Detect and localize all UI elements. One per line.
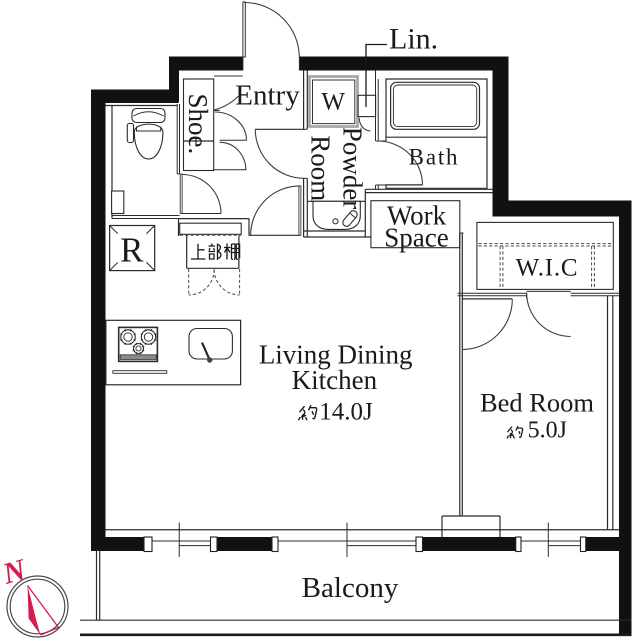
svg-text:W: W <box>321 89 345 116</box>
svg-text:Shoe.: Shoe. <box>183 94 213 155</box>
svg-text:Kitchen: Kitchen <box>292 365 378 395</box>
svg-text:Powder: Powder <box>338 127 368 210</box>
svg-text:Bed Room: Bed Room <box>480 388 594 418</box>
svg-text:Lin.: Lin. <box>389 23 438 56</box>
svg-text:Entry: Entry <box>235 80 300 112</box>
svg-text:R: R <box>120 231 144 270</box>
svg-text:Space: Space <box>384 222 448 252</box>
svg-text:Bath: Bath <box>409 145 460 170</box>
svg-text:5.0J: 5.0J <box>528 418 567 444</box>
svg-text:W.I.C: W.I.C <box>516 255 579 282</box>
svg-text:Room: Room <box>306 135 336 201</box>
svg-text:14.0J: 14.0J <box>319 398 373 425</box>
svg-text:Balcony: Balcony <box>302 572 399 604</box>
